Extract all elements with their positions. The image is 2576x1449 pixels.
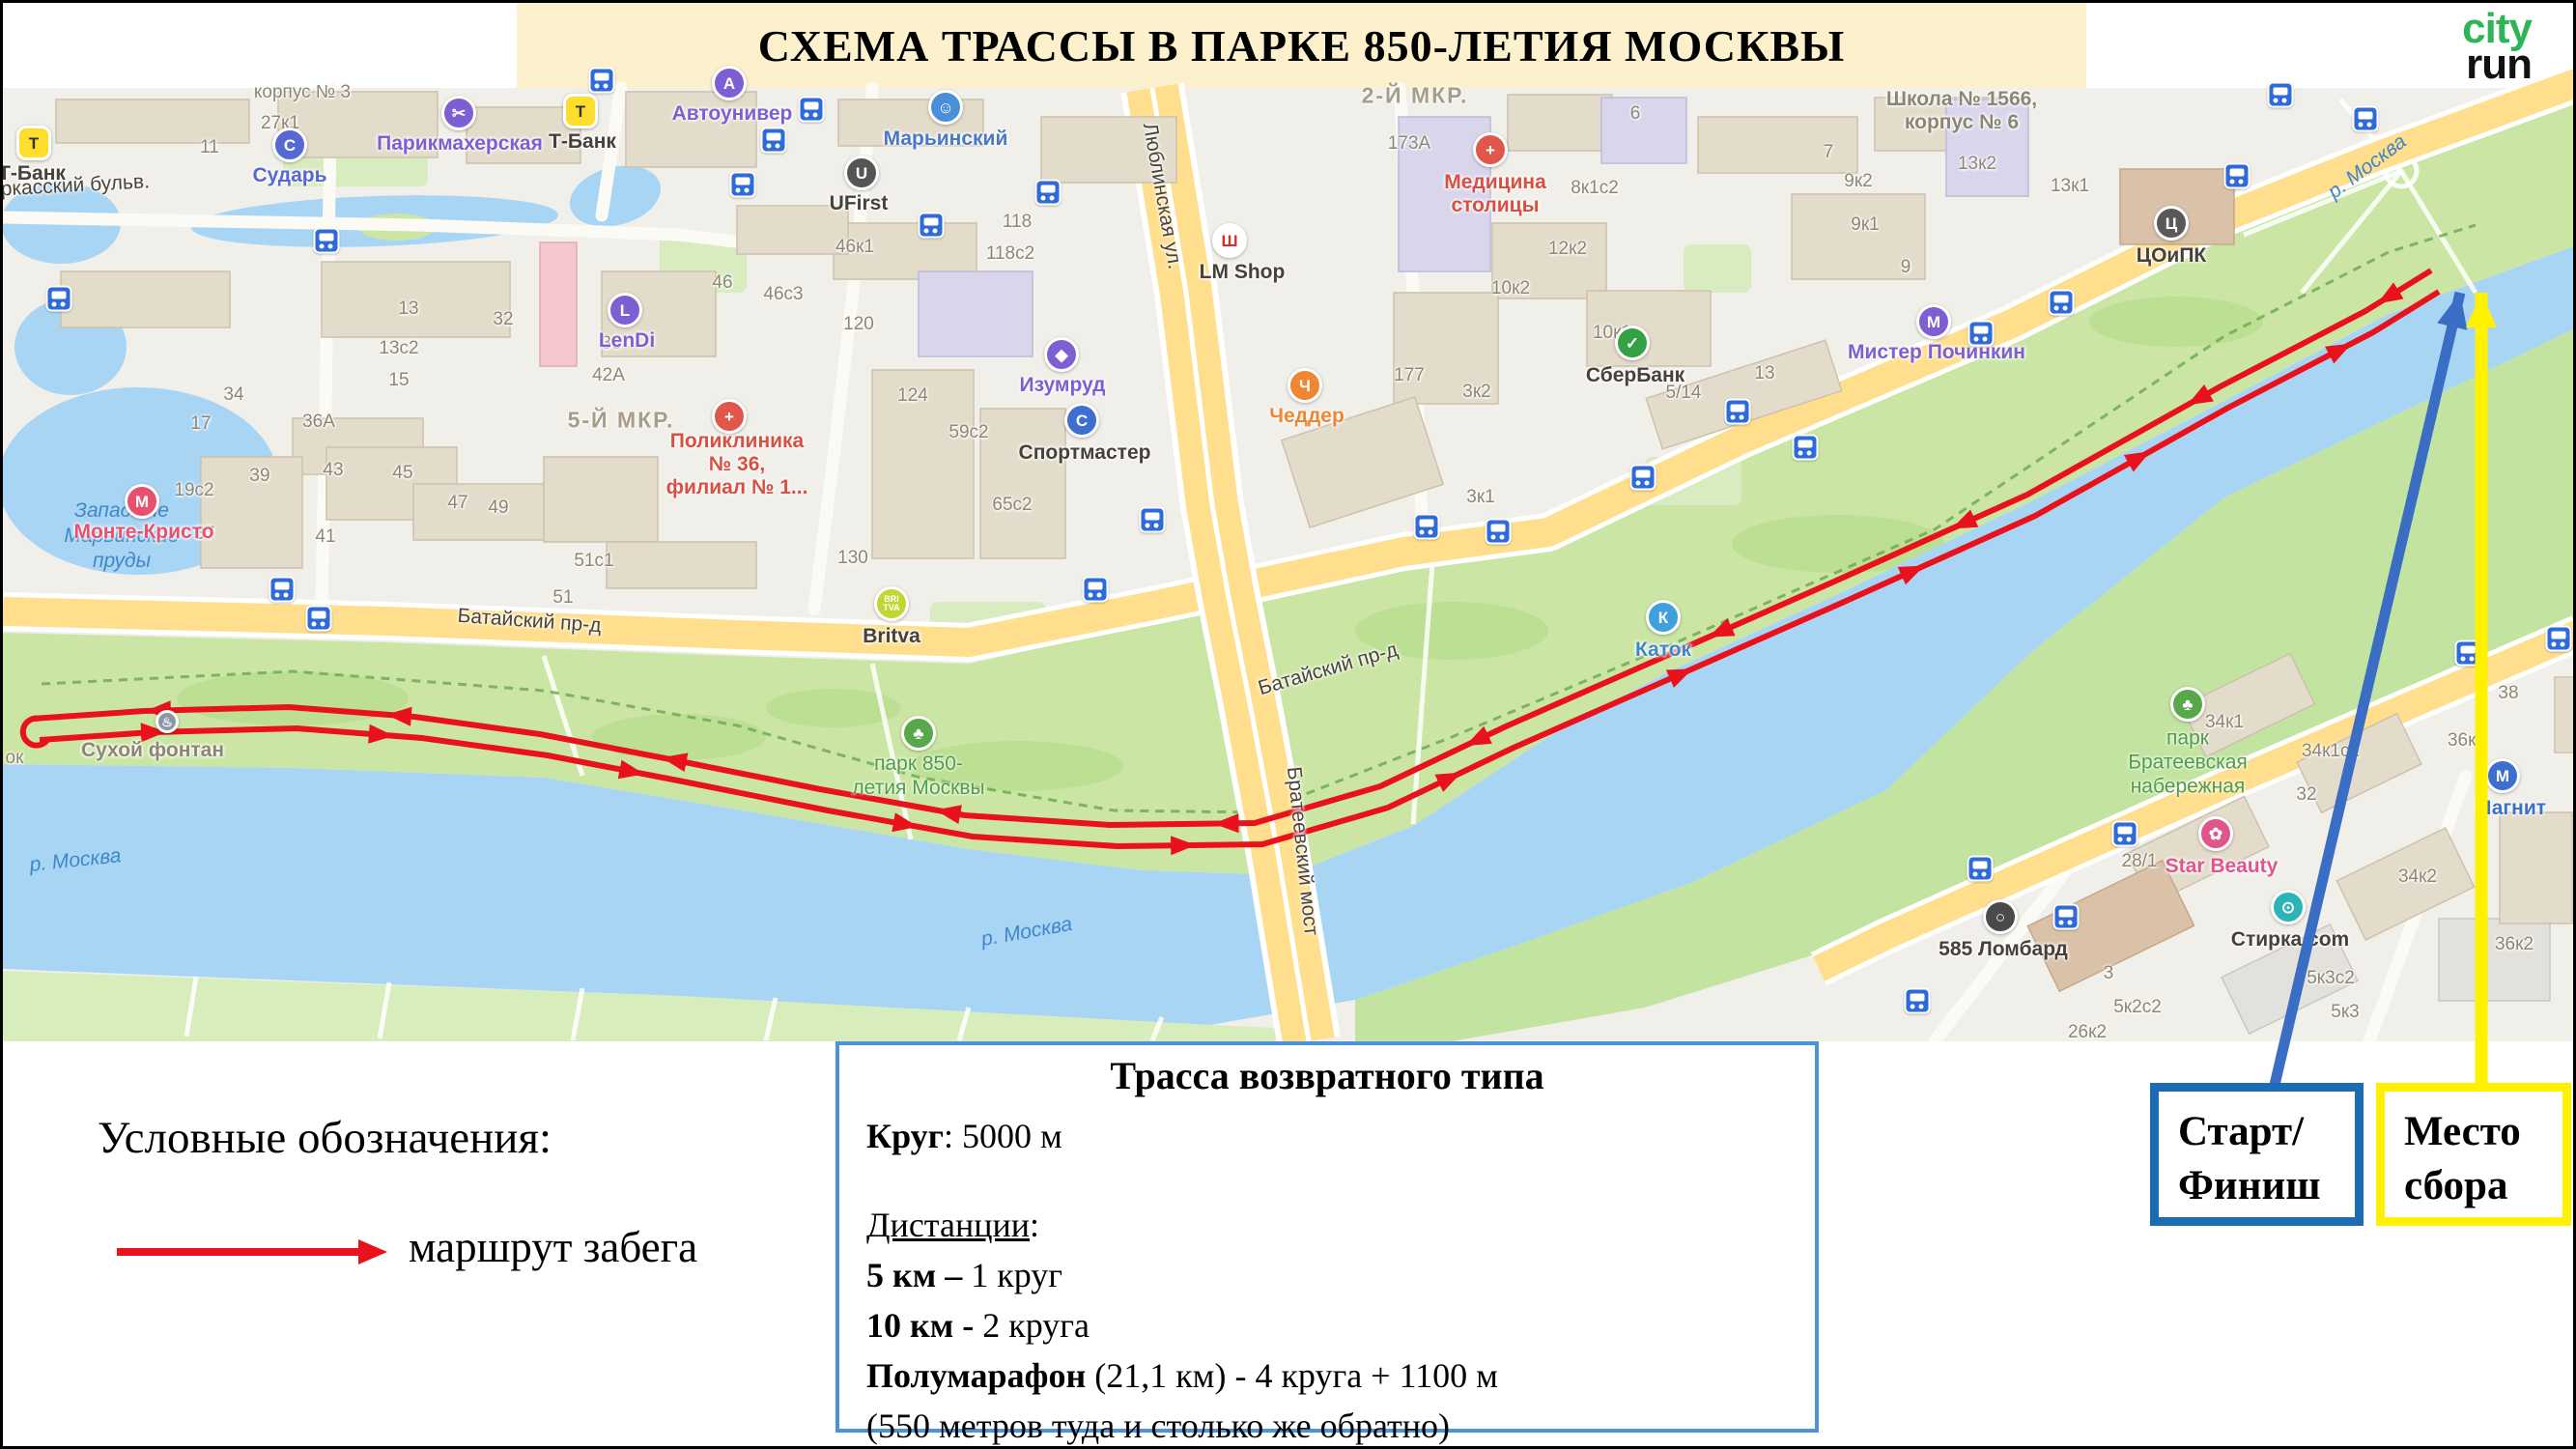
house-number: 65с2 [992, 495, 1032, 516]
info-box-text: Дистанции [866, 1206, 1030, 1244]
house-number: 28/1 [2122, 851, 2158, 872]
house-number: 32 [2296, 784, 2316, 806]
house-number: 43 [323, 460, 343, 481]
poi-label: ЦОиПК [2137, 244, 2207, 268]
poi-label: Спортмастер [1019, 441, 1151, 465]
transit-stop-icon [2455, 640, 2481, 667]
transit-stop-icon [589, 68, 615, 94]
info-box-text: (550 метров туда и столько же обратно) [866, 1406, 1450, 1445]
house-number: 41 [315, 526, 335, 548]
house-number: 9 [1901, 257, 1911, 278]
street-label: Батайский пр-д [457, 605, 602, 638]
info-box-line: 10 км - 2 круга [866, 1300, 1815, 1350]
street-label: Батайский пр-д [1256, 639, 1401, 700]
house-number: 10к2 [1491, 278, 1530, 299]
poi-label: Автоунивер [672, 102, 793, 126]
house-number: 26к2 [2068, 1022, 2107, 1041]
poi-icon: L [608, 293, 642, 327]
poi-icon: ♨ [156, 710, 179, 733]
info-box-text: 2 круга [982, 1306, 1090, 1345]
house-number: 5к2с2 [2113, 997, 2162, 1018]
house-number: 34к2 [2398, 867, 2437, 888]
poi-label: Сухой фонтан [81, 739, 224, 762]
poi-icon: М [2485, 758, 2520, 793]
poi-icon: А [712, 66, 747, 100]
course-info-box: Трасса возвратного типа Круг: 5000 мДист… [835, 1041, 1819, 1433]
info-box-body: Круг: 5000 мДистанции:5 км – 1 круг10 км… [839, 1101, 1815, 1449]
poi-icon: BRI TVA [874, 586, 909, 621]
house-number: 46 [712, 272, 732, 294]
transit-stop-icon [1905, 988, 1931, 1014]
poi-label: Стирка.com [2231, 928, 2349, 952]
street-label: Братеевский мост [1282, 765, 1322, 936]
poi-icon: М [125, 484, 159, 519]
house-number: 9к1 [1851, 214, 1879, 236]
info-box-text: (21,1 км) - 4 круга + 1100 м [1086, 1356, 1498, 1395]
poi-label: Britva [863, 625, 920, 648]
district-label: 2-Й МКР. [1362, 83, 1469, 109]
poi-icon: ✂ [441, 96, 476, 130]
house-number: 130 [837, 548, 868, 569]
house-number: 42А [592, 365, 625, 386]
poi-icon: С [272, 128, 307, 162]
transit-stop-icon [799, 97, 825, 123]
park-label: парк 850- летия Москвы [852, 752, 984, 800]
transit-stop-icon [1967, 856, 1994, 882]
transit-stop-icon [306, 606, 332, 632]
house-number: 120 [843, 314, 874, 335]
house-number: 177 [1394, 365, 1425, 386]
info-box-line: (550 метров туда и столько же обратно) [866, 1401, 1815, 1449]
poi-icon: + [1473, 132, 1508, 167]
transit-stop-icon [1414, 514, 1440, 540]
house-number: 17 [190, 413, 211, 435]
legend-title: Условные обозначения: [98, 1112, 552, 1164]
transit-stop-icon [1793, 435, 1819, 461]
transit-stop-icon [919, 213, 945, 239]
info-box-title: Трасса возвратного типа [839, 1051, 1815, 1101]
house-number: 7 [1824, 142, 1834, 163]
poi-icon: Ш [1212, 223, 1247, 258]
poi-icon: ☺ [928, 90, 963, 125]
poi-label: Парикмахерская [377, 132, 543, 156]
start-finish-line1: Старт/ [2178, 1109, 2304, 1154]
transit-stop-icon [730, 172, 756, 198]
transit-stop-icon [1630, 465, 1656, 491]
house-number: 45 [392, 463, 412, 484]
house-number: ок [6, 748, 24, 769]
poi-label: 585 Ломбард [1939, 938, 2068, 961]
park-label: парк Братеевская набережная [2128, 726, 2248, 799]
poi-label: Каток [1635, 639, 1691, 662]
poi-icon: ◆ [1044, 337, 1079, 372]
legend-route-label: маршрут забега [409, 1222, 697, 1272]
house-number: 13 [1754, 363, 1774, 384]
meeting-point-line2: сбора [2404, 1163, 2507, 1208]
street-label: Люблинская ул. [1138, 121, 1186, 270]
house-number: 5к3с2 [2307, 968, 2355, 989]
transit-stop-icon [314, 228, 340, 254]
transit-stop-icon [761, 128, 787, 154]
house-number: 47 [447, 493, 467, 514]
poi-label: Поликлиника № 36, филиал № 1... [666, 430, 808, 499]
start-finish-line2: Финиш [2178, 1163, 2321, 1208]
info-box-text: Полумарафон [866, 1356, 1086, 1395]
poi-label: Чеддер [1269, 405, 1345, 428]
transit-stop-icon [2224, 163, 2250, 189]
poi-label: Марьинский [884, 128, 1008, 151]
house-number: 34 [223, 384, 243, 406]
house-number: 3 [2104, 963, 2114, 984]
transit-stop-icon [1140, 507, 1166, 533]
poi-label: Мистер Починкин [1848, 341, 2025, 364]
poi-icon: + [712, 399, 747, 434]
house-number: 59с2 [948, 422, 988, 443]
water-label: р. Москва [2323, 129, 2412, 205]
info-box-text: : [1030, 1206, 1039, 1244]
map-labels-layer: корпус № 327к111133213с2153642А46к111811… [3, 3, 2576, 1041]
house-number: 124 [897, 385, 928, 407]
poi-icon: ⊙ [2271, 890, 2306, 924]
poi-label: Т-Банк [549, 130, 616, 154]
house-number: 5к3 [2331, 1002, 2359, 1023]
poi-label: Сударь [252, 164, 326, 187]
water-label: р. Москва [979, 912, 1074, 952]
poi-icon: ✓ [1615, 326, 1650, 360]
transit-stop-icon [1035, 180, 1062, 206]
poi-label: Магнит [2475, 797, 2546, 820]
house-number: 8к1с2 [1571, 178, 1619, 199]
info-box-line: Дистанции: [866, 1200, 1815, 1250]
poi-icon: К [1646, 600, 1681, 635]
poi-icon: С [1064, 403, 1099, 438]
poi-icon: Ч [1288, 368, 1322, 403]
house-number: 36А [302, 412, 335, 433]
poi-icon: ✿ [2198, 816, 2233, 851]
poi-icon: Т [16, 126, 51, 160]
poi-label: LenDi [599, 329, 655, 353]
house-number: 13к2 [1958, 154, 1996, 175]
house-number: 11 [200, 137, 219, 158]
house-number: 118 [1003, 212, 1032, 233]
course-map-slide: СХЕМА ТРАССЫ В ПАРКЕ 850-ЛЕТИЯ МОСКВЫ ci… [0, 0, 2576, 1449]
house-number: 51 [552, 587, 573, 609]
water-label: р. Москва [28, 843, 122, 878]
poi-label: Медицина столицы [1444, 171, 1546, 217]
poi-label: Т-Банк [3, 162, 66, 185]
house-number: 46с3 [763, 284, 803, 305]
start-finish-callout: Старт/ Финиш [2150, 1083, 2364, 1226]
info-box-line: Круг: 5000 м [866, 1111, 1815, 1161]
house-number: корпус № 3 [254, 82, 351, 103]
transit-stop-icon [1486, 519, 1512, 545]
house-number: 38 [2498, 683, 2518, 704]
house-number: 51с1 [574, 551, 613, 572]
meeting-point-callout: Место сбора [2376, 1083, 2571, 1226]
house-number: 19с2 [174, 480, 213, 501]
transit-stop-icon [2053, 904, 2080, 930]
poi-icon: U [844, 156, 879, 190]
poi-label: СберБанк [1586, 364, 1684, 387]
info-box-line: Полумарафон (21,1 км) - 4 круга + 1100 м [866, 1350, 1815, 1401]
poi-label: Star Beauty [2166, 855, 2279, 878]
info-box-line: 5 км – 1 круг [866, 1250, 1815, 1300]
poi-icon: ♣ [901, 716, 936, 751]
house-number: 13к1 [2051, 176, 2089, 197]
info-box-text: : 5000 м [944, 1117, 1062, 1155]
house-number: 49 [488, 497, 508, 519]
house-number: 39 [249, 466, 269, 487]
poi-icon: М [1916, 304, 1951, 339]
house-number: 12к2 [1548, 239, 1587, 260]
info-box-text: Круг [866, 1117, 944, 1155]
house-number: 9к2 [1844, 171, 1872, 192]
transit-stop-icon [1725, 399, 1751, 425]
poi-label: Изумруд [1020, 374, 1106, 397]
house-number: 118с2 [986, 243, 1034, 265]
transit-stop-icon [2049, 290, 2075, 316]
house-number: 36к1 [2448, 730, 2486, 752]
transit-stop-icon [269, 577, 296, 603]
poi-icon: Т [563, 94, 598, 128]
poi-icon: Ц [2154, 206, 2189, 241]
house-number: 6 [1630, 103, 1641, 125]
poi-label: LM Shop [1200, 261, 1286, 284]
poi-label: Школа № 1566, корпус № 6 [1886, 88, 2037, 134]
info-box-text: 1 круг [971, 1256, 1062, 1294]
transit-stop-icon [2353, 106, 2379, 132]
house-number: 32 [493, 309, 513, 330]
house-number: 15 [388, 370, 409, 391]
poi-label: UFirst [830, 192, 889, 215]
house-number: 13с2 [379, 338, 418, 359]
district-label: 5-Й МКР. [568, 408, 675, 434]
info-box-spacer [866, 1161, 1815, 1200]
meeting-point-line1: Место [2404, 1109, 2521, 1154]
transit-stop-icon [1083, 577, 1109, 603]
house-number: 46к1 [835, 237, 874, 258]
poi-icon: ○ [1983, 899, 2018, 934]
transit-stop-icon [46, 286, 72, 312]
transit-stop-icon [2112, 821, 2138, 847]
house-number: 173А [1388, 133, 1430, 155]
poi-label: Монте-Кристо [73, 521, 213, 544]
house-number: 3к1 [1466, 487, 1494, 508]
house-number: 34к1с2 [2302, 741, 2360, 762]
poi-icon: ♣ [2170, 687, 2205, 722]
transit-stop-icon [2546, 626, 2572, 652]
transit-stop-icon [2268, 82, 2294, 108]
info-box-text: 5 км – [866, 1256, 971, 1294]
house-number: 36к2 [2495, 934, 2534, 955]
house-number: 3к2 [1462, 382, 1490, 403]
info-box-text: 10 км - [866, 1306, 982, 1345]
map-area: корпус № 327к111133213с2153642А46к111811… [3, 3, 2576, 1041]
house-number: 13 [398, 298, 418, 320]
